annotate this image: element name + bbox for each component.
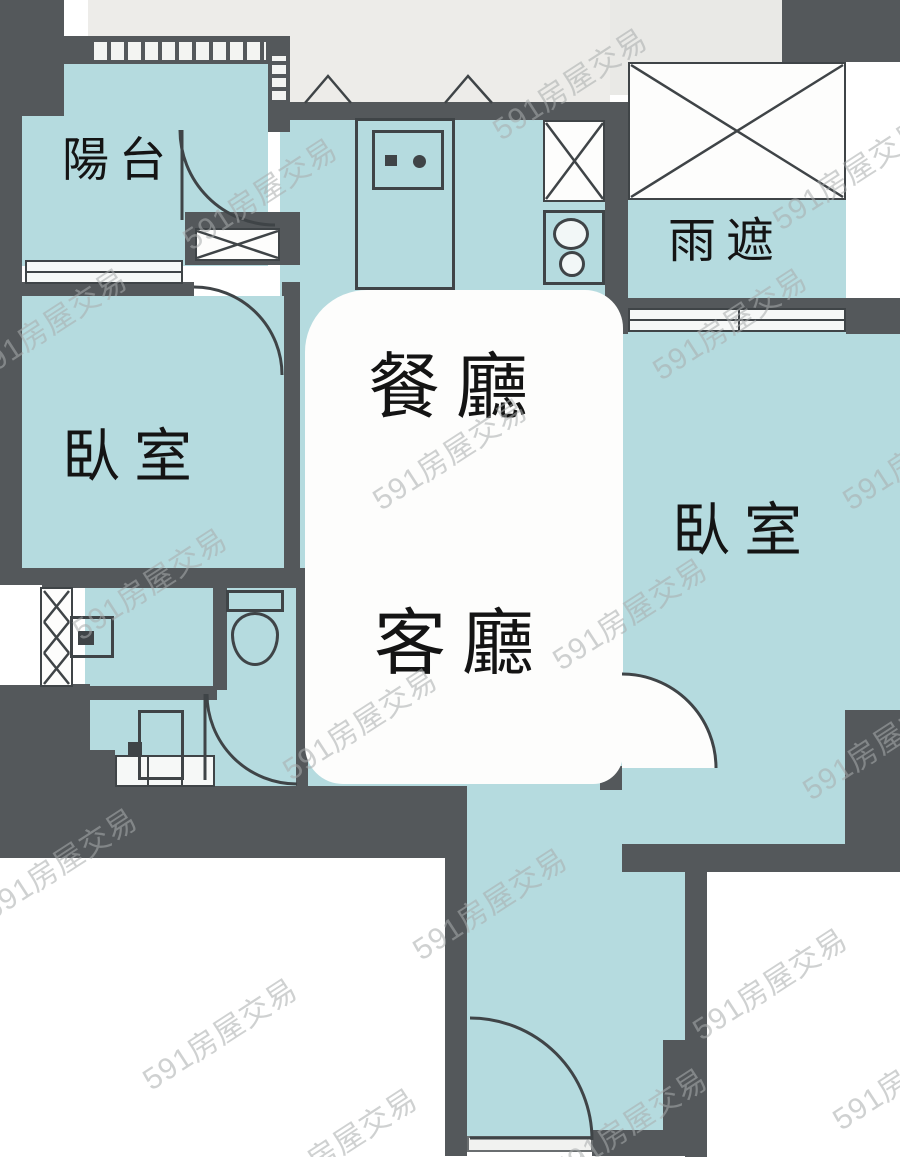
window-symbol-2 [445, 76, 492, 103]
label-living-room: 客廳 [374, 608, 550, 680]
xbox-diagonals-large [631, 65, 843, 197]
xbox-diagonals-kitchen [546, 123, 603, 199]
label-balcony: 陽台 [62, 138, 176, 185]
label-bedroom-right: 臥室 [672, 502, 816, 560]
label-rain-cover: 雨遮 [668, 218, 784, 266]
label-bedroom-left: 臥室 [62, 428, 206, 486]
door-arc-entry [470, 1018, 592, 1140]
xbox-diagonals-small [197, 231, 278, 258]
shaft-zigzag [44, 591, 69, 684]
window-symbol-1 [305, 76, 351, 103]
floor-plan: 陽台 雨遮 臥室 臥室 餐廳 客廳 591房屋交易591房屋交易591房屋交易5… [0, 0, 900, 1157]
door-arc-balcony [180, 130, 275, 225]
door-arc-bedroom-left [194, 287, 282, 375]
label-dining-room: 餐廳 [368, 352, 544, 424]
door-arc-bathroom [207, 694, 297, 784]
